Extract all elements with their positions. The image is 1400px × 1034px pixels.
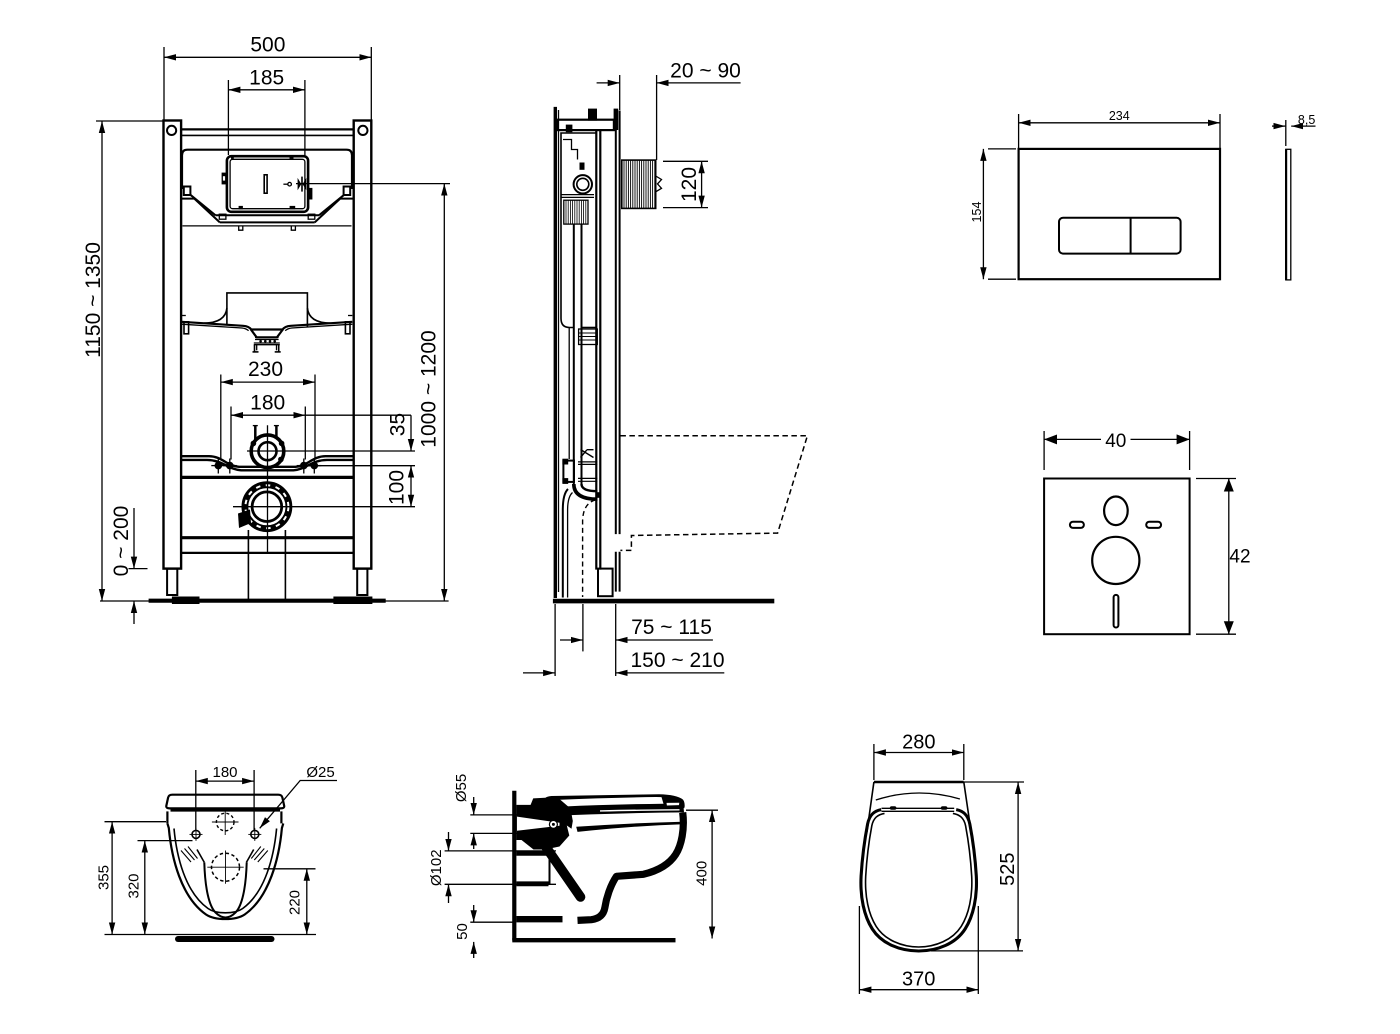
svg-text:1150 ~ 1350: 1150 ~ 1350 [82,242,105,358]
svg-text:185: 185 [249,66,284,89]
svg-text:320: 320 [125,873,142,898]
svg-text:500: 500 [250,34,285,57]
svg-text:50: 50 [454,923,471,940]
svg-text:120: 120 [678,167,701,202]
svg-text:234: 234 [1109,109,1130,123]
svg-text:40: 40 [1105,431,1126,452]
svg-text:1000 ~ 1200: 1000 ~ 1200 [417,330,440,447]
svg-text:35: 35 [386,413,409,436]
svg-text:370: 370 [902,969,935,991]
svg-text:220: 220 [286,890,303,915]
svg-text:0 ~ 200: 0 ~ 200 [110,506,133,577]
svg-text:Ø25: Ø25 [306,764,334,781]
svg-text:100: 100 [385,470,408,505]
svg-text:230: 230 [248,358,283,381]
svg-text:42: 42 [1229,547,1250,568]
svg-text:525: 525 [997,853,1019,886]
svg-text:280: 280 [902,731,935,753]
svg-text:150 ~ 210: 150 ~ 210 [630,649,724,672]
svg-text:75 ~ 115: 75 ~ 115 [631,616,712,639]
svg-text:180: 180 [212,764,237,781]
svg-text:400: 400 [693,861,710,886]
svg-text:8,5: 8,5 [1298,113,1315,127]
svg-text:355: 355 [95,865,112,890]
svg-text:Ø55: Ø55 [453,774,470,802]
svg-text:180: 180 [250,391,285,414]
svg-text:Ø102: Ø102 [428,849,445,886]
svg-text:20 ~ 90: 20 ~ 90 [670,60,741,83]
svg-text:154: 154 [970,202,984,223]
